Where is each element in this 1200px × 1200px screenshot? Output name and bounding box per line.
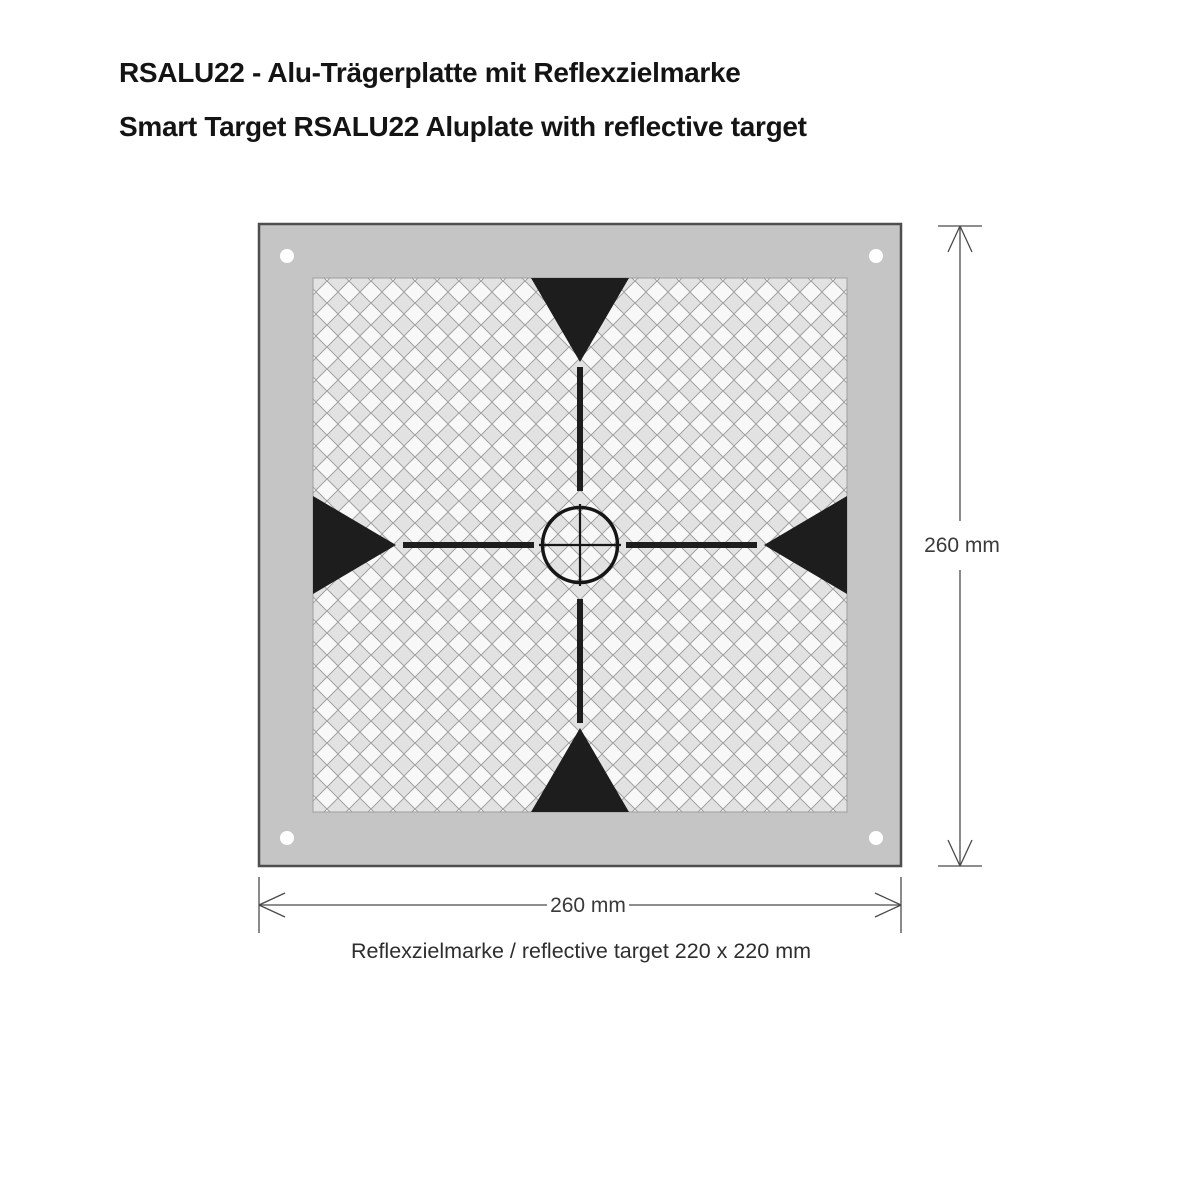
dimension-height-label: 260 mm <box>924 534 1000 557</box>
mounting-hole-bottom-right <box>869 831 883 845</box>
dimension-width-label: 260 mm <box>550 894 626 917</box>
target-plate-diagram: 260 mm 260 mm Reflexzielmarke / reflecti… <box>0 0 1200 1200</box>
mounting-hole-top-right <box>869 249 883 263</box>
mounting-hole-bottom-left <box>280 831 294 845</box>
page: RSALU22 - Alu-Trägerplatte mit Reflexzie… <box>0 0 1200 1200</box>
diagram-caption: Reflexzielmarke / reflective target 220 … <box>351 939 811 963</box>
mounting-hole-top-left <box>280 249 294 263</box>
